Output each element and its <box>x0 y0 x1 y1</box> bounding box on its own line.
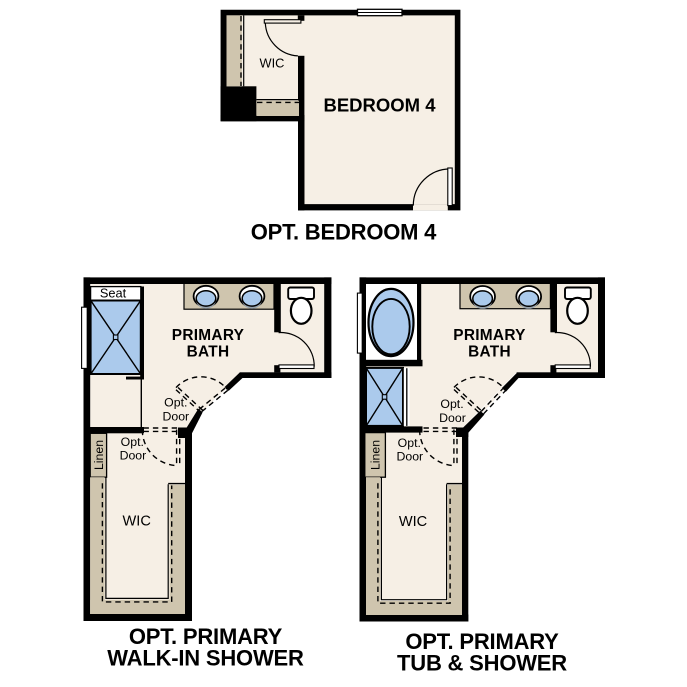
svg-text:Opt.: Opt. <box>440 397 463 411</box>
svg-text:WIC: WIC <box>123 513 151 529</box>
svg-text:Linen: Linen <box>92 440 106 470</box>
svg-text:Door: Door <box>120 448 147 462</box>
svg-text:Door: Door <box>162 410 189 424</box>
svg-text:WALK-IN SHOWER: WALK-IN SHOWER <box>107 645 304 670</box>
svg-text:Opt.: Opt. <box>121 435 144 449</box>
svg-text:TUB & SHOWER: TUB & SHOWER <box>397 650 567 675</box>
svg-text:Seat: Seat <box>100 285 127 300</box>
svg-text:PRIMARY: PRIMARY <box>453 327 526 344</box>
svg-text:BATH: BATH <box>468 344 511 361</box>
svg-text:OPT. BEDROOM 4: OPT. BEDROOM 4 <box>251 219 437 244</box>
svg-text:Opt.: Opt. <box>164 396 187 410</box>
svg-text:Door: Door <box>439 411 466 425</box>
svg-text:Door: Door <box>396 450 423 464</box>
svg-text:WIC: WIC <box>260 56 285 71</box>
svg-text:Linen: Linen <box>368 440 382 470</box>
svg-text:BEDROOM 4: BEDROOM 4 <box>323 95 436 116</box>
svg-text:WIC: WIC <box>399 514 427 530</box>
svg-text:BATH: BATH <box>187 344 230 361</box>
svg-text:PRIMARY: PRIMARY <box>172 327 245 344</box>
svg-text:Opt.: Opt. <box>398 436 421 450</box>
